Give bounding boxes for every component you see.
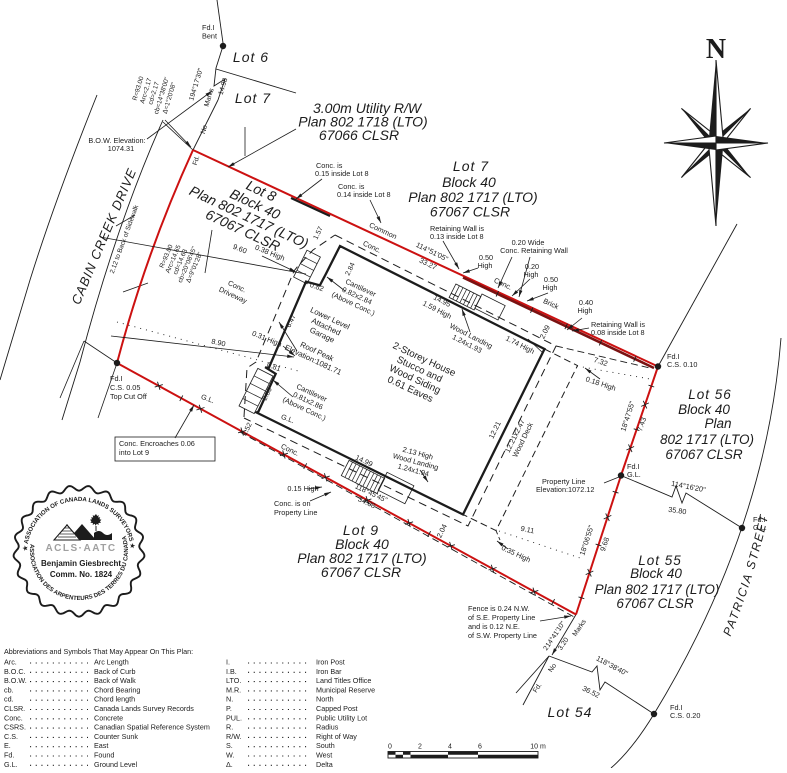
svg-text:N: N [706,34,726,65]
svg-text:M.R.: M.R. [226,685,241,694]
svg-text:South: South [316,741,335,750]
svg-text:10 m: 10 m [530,744,546,751]
svg-text:6: 6 [478,744,482,751]
svg-text:Lot 7: Lot 7 [235,90,271,106]
svg-text:E.: E. [4,741,11,750]
svg-text:ACLS·AATC: ACLS·AATC [45,543,116,554]
svg-text:0.15 High: 0.15 High [287,484,318,493]
svg-text:R/W.: R/W. [226,732,242,741]
svg-text:High: High [477,261,492,270]
svg-text:1074.31: 1074.31 [108,144,134,153]
svg-text:Chord Bearing: Chord Bearing [94,685,140,694]
svg-text:Lot 56: Lot 56 [688,387,732,402]
svg-text:B.O.W.: B.O.W. [4,676,27,685]
svg-text:PUL.: PUL. [226,713,242,722]
svg-text:0: 0 [388,744,392,751]
svg-text:Lot 7: Lot 7 [453,158,489,174]
svg-text:of S.E. Property Line: of S.E. Property Line [468,613,535,622]
svg-text:CSRS.: CSRS. [4,723,26,732]
svg-text:Conc. Retaining Wall: Conc. Retaining Wall [500,246,568,255]
svg-text:B.O.C.: B.O.C. [4,667,26,676]
svg-text:Canadian Spatial Reference Sys: Canadian Spatial Reference System [94,723,210,732]
svg-text:Conc. is on: Conc. is on [274,499,311,508]
svg-text:Block 40: Block 40 [442,174,496,190]
svg-text:R.: R. [226,723,233,732]
svg-text:G.L.: G.L. [4,760,18,768]
svg-text:67067 CLSR: 67067 CLSR [665,447,743,462]
svg-text:Plan: Plan [704,416,731,431]
svg-text:Top Cut Off: Top Cut Off [110,392,148,401]
svg-text:Arc.: Arc. [4,658,17,667]
svg-text:Capped Post: Capped Post [316,704,358,713]
svg-text:Block 40: Block 40 [678,402,730,417]
svg-text:Lot 54: Lot 54 [548,704,593,720]
svg-text:Counter Sunk: Counter Sunk [94,732,138,741]
svg-text:I.B.: I.B. [226,667,237,676]
svg-text:Property Line: Property Line [274,508,317,517]
svg-text:C.S. 0.20: C.S. 0.20 [670,711,700,720]
svg-text:0.14 inside Lot 8: 0.14 inside Lot 8 [337,190,391,199]
svg-text:Fd.: Fd. [4,751,14,760]
svg-text:North: North [316,695,334,704]
svg-text:Ground Level: Ground Level [94,760,138,768]
svg-text:W.: W. [226,751,234,760]
svg-text:C.S. 0.05: C.S. 0.05 [110,383,140,392]
svg-text:Δ.: Δ. [226,760,233,768]
svg-text:Elevation:1072.12: Elevation:1072.12 [536,485,594,494]
svg-text:Conc. Encroaches 0.06: Conc. Encroaches 0.06 [119,439,195,448]
svg-text:Land Titles Office: Land Titles Office [316,676,371,685]
svg-text:802 1717 (LTO): 802 1717 (LTO) [660,432,754,447]
svg-text:Iron Bar: Iron Bar [316,667,342,676]
svg-text:Delta: Delta [316,760,333,768]
svg-text:of S.W. Property Line: of S.W. Property Line [468,631,537,640]
svg-text:67066 CLSR: 67066 CLSR [319,127,399,143]
svg-text:and is 0.12 N.E.: and is 0.12 N.E. [468,622,520,631]
svg-text:0.15 inside Lot 8: 0.15 inside Lot 8 [315,169,369,178]
svg-text:High: High [542,283,557,292]
svg-text:67067 CLSR: 67067 CLSR [430,204,510,220]
svg-text:67067 CLSR: 67067 CLSR [321,564,401,580]
svg-text:4: 4 [448,744,452,751]
svg-text:Bent: Bent [202,32,217,41]
svg-text:Comm. No. 1824: Comm. No. 1824 [50,570,113,579]
svg-text:Chord length: Chord length [94,695,135,704]
svg-text:Radius: Radius [316,723,339,732]
svg-text:LTO.: LTO. [226,676,241,685]
svg-text:0.13 inside Lot 8: 0.13 inside Lot 8 [430,232,484,241]
svg-text:Fence is 0.24 N.W.: Fence is 0.24 N.W. [468,604,530,613]
svg-text:Benjamin Giesbrecht: Benjamin Giesbrecht [41,559,121,568]
svg-text:Abbreviations and Symbols That: Abbreviations and Symbols That May Appea… [4,647,193,656]
svg-text:cb.: cb. [4,685,14,694]
svg-text:Lot 6: Lot 6 [233,49,269,65]
svg-text:C.S.: C.S. [4,732,18,741]
svg-text:Fd.I: Fd.I [110,374,123,383]
svg-text:West: West [316,751,332,760]
svg-text:Block 40: Block 40 [630,566,682,581]
svg-text:High: High [577,306,592,315]
svg-text:P.: P. [226,704,232,713]
svg-text:cd.: cd. [4,695,14,704]
svg-text:Iron Post: Iron Post [316,658,345,667]
svg-text:S.: S. [226,741,233,750]
svg-text:Municipal Reserve: Municipal Reserve [316,685,375,694]
svg-text:67067 CLSR: 67067 CLSR [616,596,694,611]
svg-text:High: High [523,270,538,279]
svg-text:C.S. 0.10: C.S. 0.10 [667,360,697,369]
svg-text:2: 2 [418,744,422,751]
svg-text:Conc.: Conc. [4,713,23,722]
svg-text:Public Utility Lot: Public Utility Lot [316,713,367,722]
svg-text:Right of Way: Right of Way [316,732,357,741]
svg-text:Arc Length: Arc Length [94,658,129,667]
svg-text:G.L.: G.L. [627,470,641,479]
svg-text:Back of Curb: Back of Curb [94,667,136,676]
svg-text:East: East [94,741,108,750]
svg-text:into Lot 9: into Lot 9 [119,448,149,457]
svg-text:Back of Walk: Back of Walk [94,676,136,685]
svg-text:Concrete: Concrete [94,713,123,722]
svg-text:CLSR.: CLSR. [4,704,25,713]
svg-text:Canada Lands Survey Records: Canada Lands Survey Records [94,704,194,713]
svg-text:Found: Found [94,751,114,760]
svg-text:0.08 inside Lot 8: 0.08 inside Lot 8 [591,328,645,337]
svg-text:N.: N. [226,695,233,704]
svg-text:I.: I. [226,658,230,667]
svg-text:Plan 802 1717 (LTO): Plan 802 1717 (LTO) [595,582,720,597]
